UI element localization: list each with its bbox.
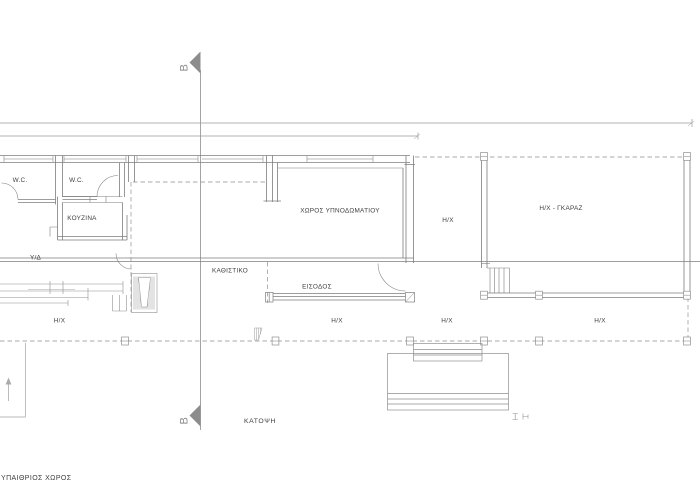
dimension-line-long: [0, 119, 692, 127]
floor-plan-drawing: B B: [0, 0, 700, 500]
veranda-step: [113, 295, 127, 311]
room-labels: W.C. W.C. ΚΟΥΖΙΝΑ ΧΩΡΟΣ ΥΠΝΟΔΩΜΑΤΙΟΥ Υ/Δ…: [1, 177, 606, 482]
section-label-top: B: [179, 64, 191, 71]
garage-walls: [482, 157, 691, 298]
label-hx-veranda-right: Η/Χ: [441, 318, 453, 325]
garage-steps: [487, 268, 510, 293]
kitchen-left-wall: [58, 197, 63, 241]
wc2-door-arc: [97, 176, 118, 197]
section-line-b: B B: [179, 52, 201, 431]
label-hx-veranda-left: Η/Χ: [54, 318, 66, 325]
label-living-room: ΚΑΘΙΣΤΙΚΟ: [212, 268, 248, 275]
label-garage: Η/Χ - ΓΚΑΡΑΖ: [539, 205, 582, 212]
section-arrow-top-icon: [190, 52, 201, 74]
wc1-door-arc: [2, 183, 19, 200]
wc2-bottom-wall: [63, 197, 98, 200]
section-label-bottom: B: [179, 417, 191, 424]
veranda-dim-line: [0, 300, 68, 306]
label-hx-veranda-center: Η/Χ: [331, 318, 343, 325]
wc1-bottom-wall: [18, 200, 56, 203]
plan-title: ΚΑΤΟΨΗ: [244, 418, 276, 425]
garage-left-wall: [482, 157, 488, 268]
kitchen-corner: [50, 227, 58, 237]
label-wc-2: W.C.: [69, 177, 84, 184]
dimension-end-ticks: [414, 121, 694, 139]
wc2-right-wall: [120, 163, 125, 197]
dashed-boundaries: [0, 157, 690, 341]
kitchen-right-wall: [123, 203, 128, 241]
entrance-window-lines: [273, 294, 405, 301]
fireplace: [132, 274, 158, 313]
outdoor-space-label: ΥΠΑΙΘΡΙΟΣ ΧΩΡΟΣ: [1, 475, 72, 482]
dimension-line-short: [0, 133, 418, 140]
label-entrance: ΕΙΣΟΔΟΣ: [302, 284, 332, 291]
entrance-wall: [266, 264, 415, 303]
label-utility: Υ/Δ: [30, 255, 42, 262]
dimension-lines: [0, 119, 694, 140]
stair-section-mark-icon: [513, 414, 529, 420]
label-hx-veranda-far-right: Η/Χ: [594, 318, 606, 325]
section-arrow-bottom-icon: [190, 405, 201, 427]
exterior-stair: [388, 344, 529, 420]
exterior-wall-top: [0, 156, 410, 169]
small-hatch-element: [255, 328, 263, 340]
garage-right-wall: [684, 157, 690, 298]
kitchen-top-column: [129, 156, 135, 183]
kitchen-bottom-wall: [58, 237, 128, 241]
label-hx-room: Η/Χ: [442, 217, 454, 224]
label-wc-1: W.C.: [13, 177, 28, 184]
outdoor-ramp: [0, 343, 26, 417]
veranda-window-left: [0, 281, 123, 306]
garage-bottom-wall: [482, 293, 691, 298]
entrance-door-arc: [378, 264, 406, 292]
label-bedroom: ΧΩΡΟΣ ΥΠΝΟΔΩΜΑΤΙΟΥ: [300, 208, 380, 215]
label-kitchen: ΚΟΥΖΙΝΑ: [67, 215, 97, 222]
up-arrow-head-icon: [6, 378, 12, 385]
bedroom-right-wall: [403, 156, 415, 264]
